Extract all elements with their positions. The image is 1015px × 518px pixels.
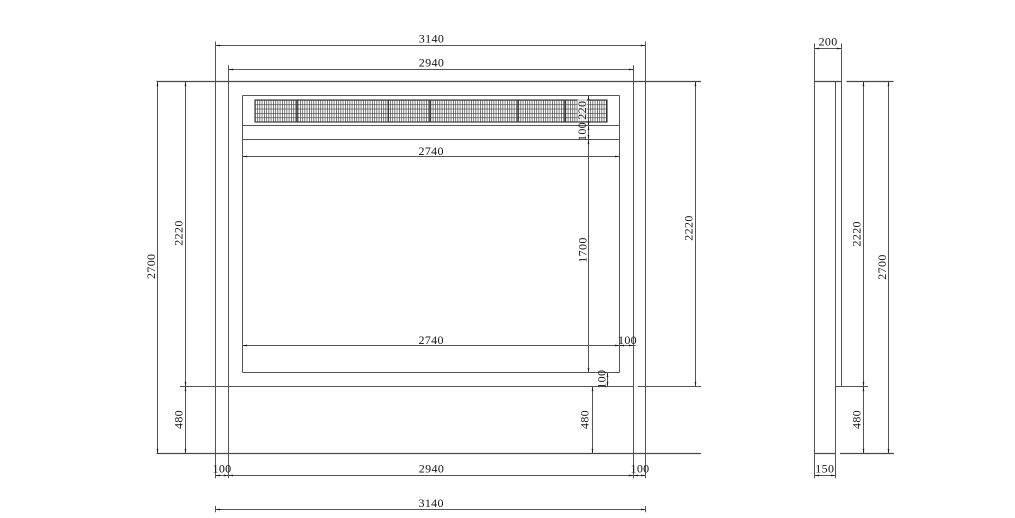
svg-text:100: 100	[630, 462, 649, 476]
svg-text:100: 100	[212, 462, 231, 476]
svg-text:480: 480	[172, 410, 186, 429]
svg-text:2220: 2220	[850, 221, 864, 246]
svg-text:2740: 2740	[418, 144, 443, 158]
svg-text:480: 480	[850, 410, 864, 429]
svg-text:3140: 3140	[419, 32, 444, 46]
svg-text:100: 100	[575, 122, 589, 141]
svg-text:2220: 2220	[172, 220, 186, 245]
svg-text:2740: 2740	[418, 333, 443, 347]
svg-text:2700: 2700	[875, 254, 889, 279]
svg-text:220: 220	[575, 101, 589, 120]
svg-text:2940: 2940	[419, 56, 444, 70]
svg-text:1700: 1700	[575, 237, 589, 262]
svg-text:100: 100	[618, 333, 637, 347]
svg-text:150: 150	[815, 462, 834, 476]
svg-text:200: 200	[819, 35, 838, 49]
svg-text:480: 480	[578, 410, 592, 429]
svg-text:3140: 3140	[418, 496, 443, 510]
svg-text:2220: 2220	[681, 215, 695, 240]
svg-text:2940: 2940	[419, 462, 444, 476]
svg-text:100: 100	[594, 370, 608, 389]
svg-text:2700: 2700	[144, 254, 158, 279]
